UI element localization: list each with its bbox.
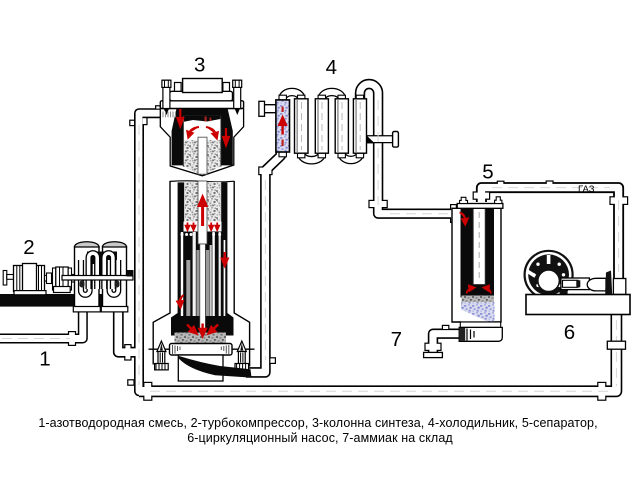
svg-text:1: 1 bbox=[39, 347, 50, 370]
svg-text:ГАЗ: ГАЗ bbox=[578, 184, 595, 195]
svg-text:4: 4 bbox=[326, 56, 337, 79]
svg-text:6: 6 bbox=[564, 321, 575, 344]
svg-text:5: 5 bbox=[482, 160, 493, 183]
svg-text:7: 7 bbox=[391, 328, 402, 351]
svg-text:3: 3 bbox=[194, 54, 205, 77]
svg-text:1-азотводородная смесь, 2-турб: 1-азотводородная смесь, 2-турбокомпрессо… bbox=[38, 416, 597, 430]
svg-text:6-циркуляционный насос, 7-амми: 6-циркуляционный насос, 7-аммиак на скла… bbox=[187, 431, 453, 445]
svg-text:2: 2 bbox=[23, 236, 34, 259]
